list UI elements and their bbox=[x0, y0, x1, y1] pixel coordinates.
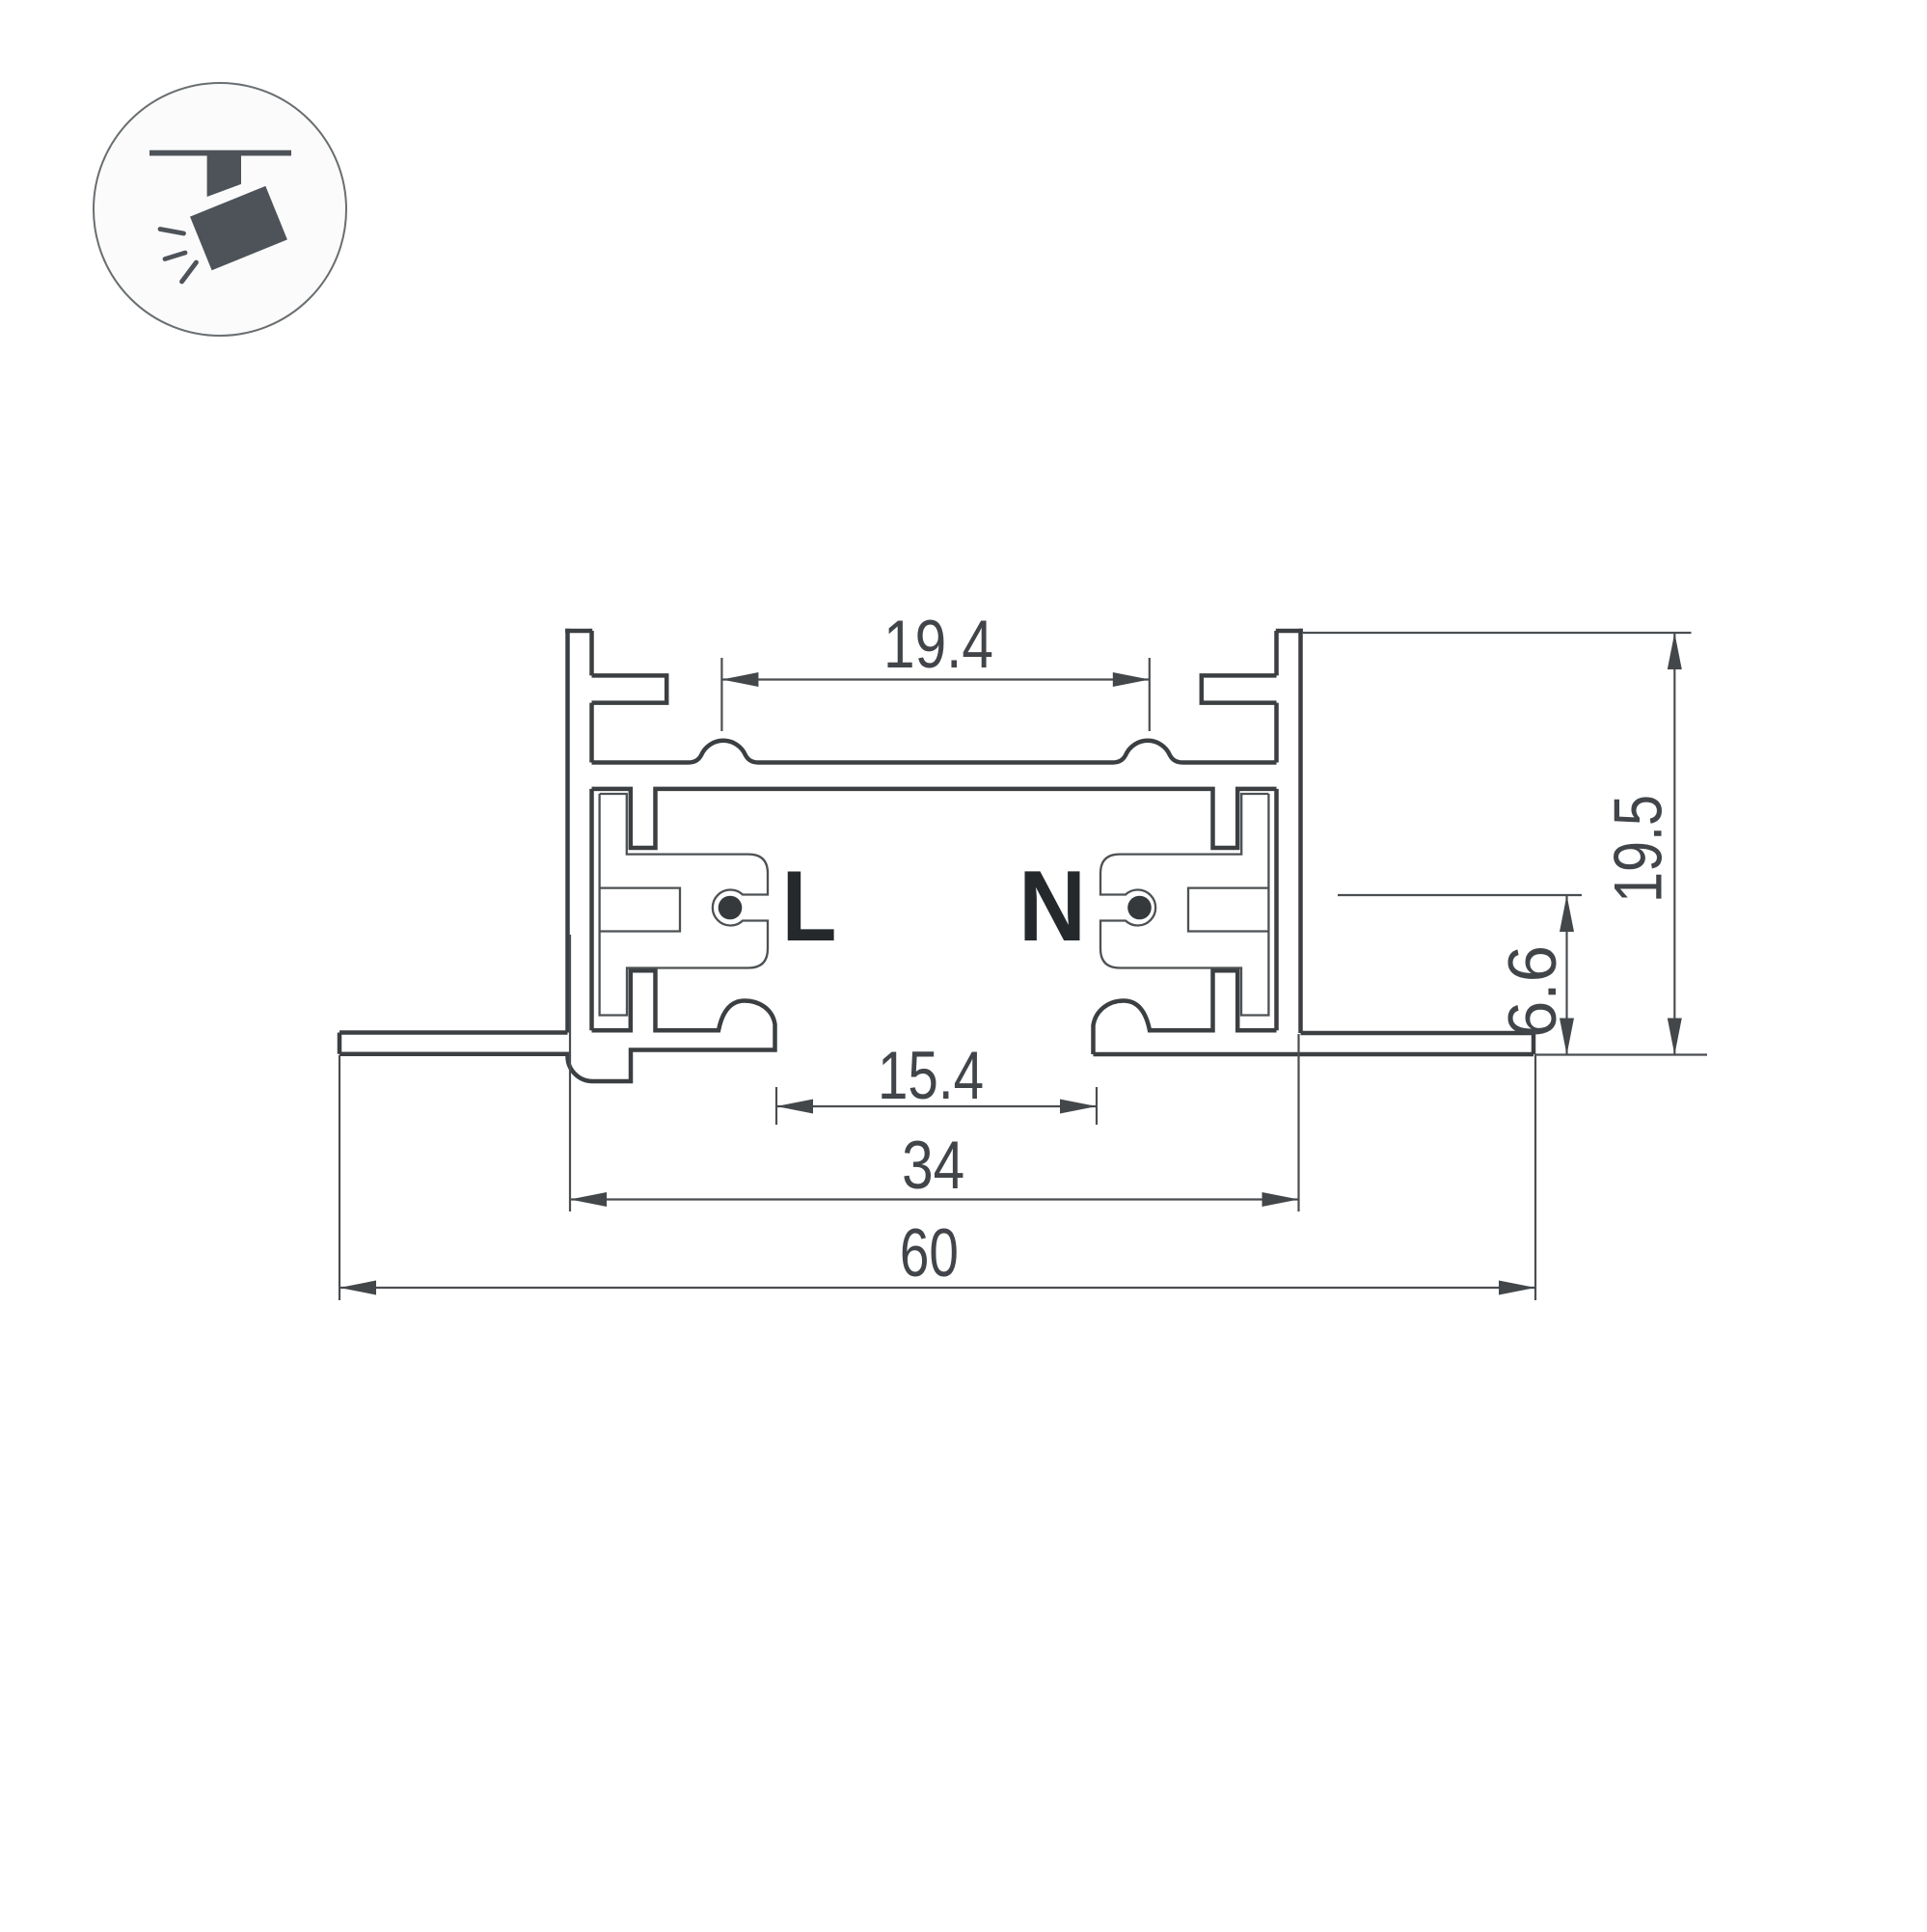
svg-text:60: 60 bbox=[900, 1214, 959, 1291]
svg-text:19.4: 19.4 bbox=[883, 606, 993, 682]
svg-text:6.6: 6.6 bbox=[1494, 945, 1570, 1038]
svg-text:15.4: 15.4 bbox=[878, 1037, 984, 1113]
svg-text:N: N bbox=[1018, 851, 1086, 963]
svg-text:34: 34 bbox=[902, 1127, 964, 1203]
svg-text:L: L bbox=[782, 851, 837, 963]
svg-text:19.5: 19.5 bbox=[1600, 795, 1676, 903]
